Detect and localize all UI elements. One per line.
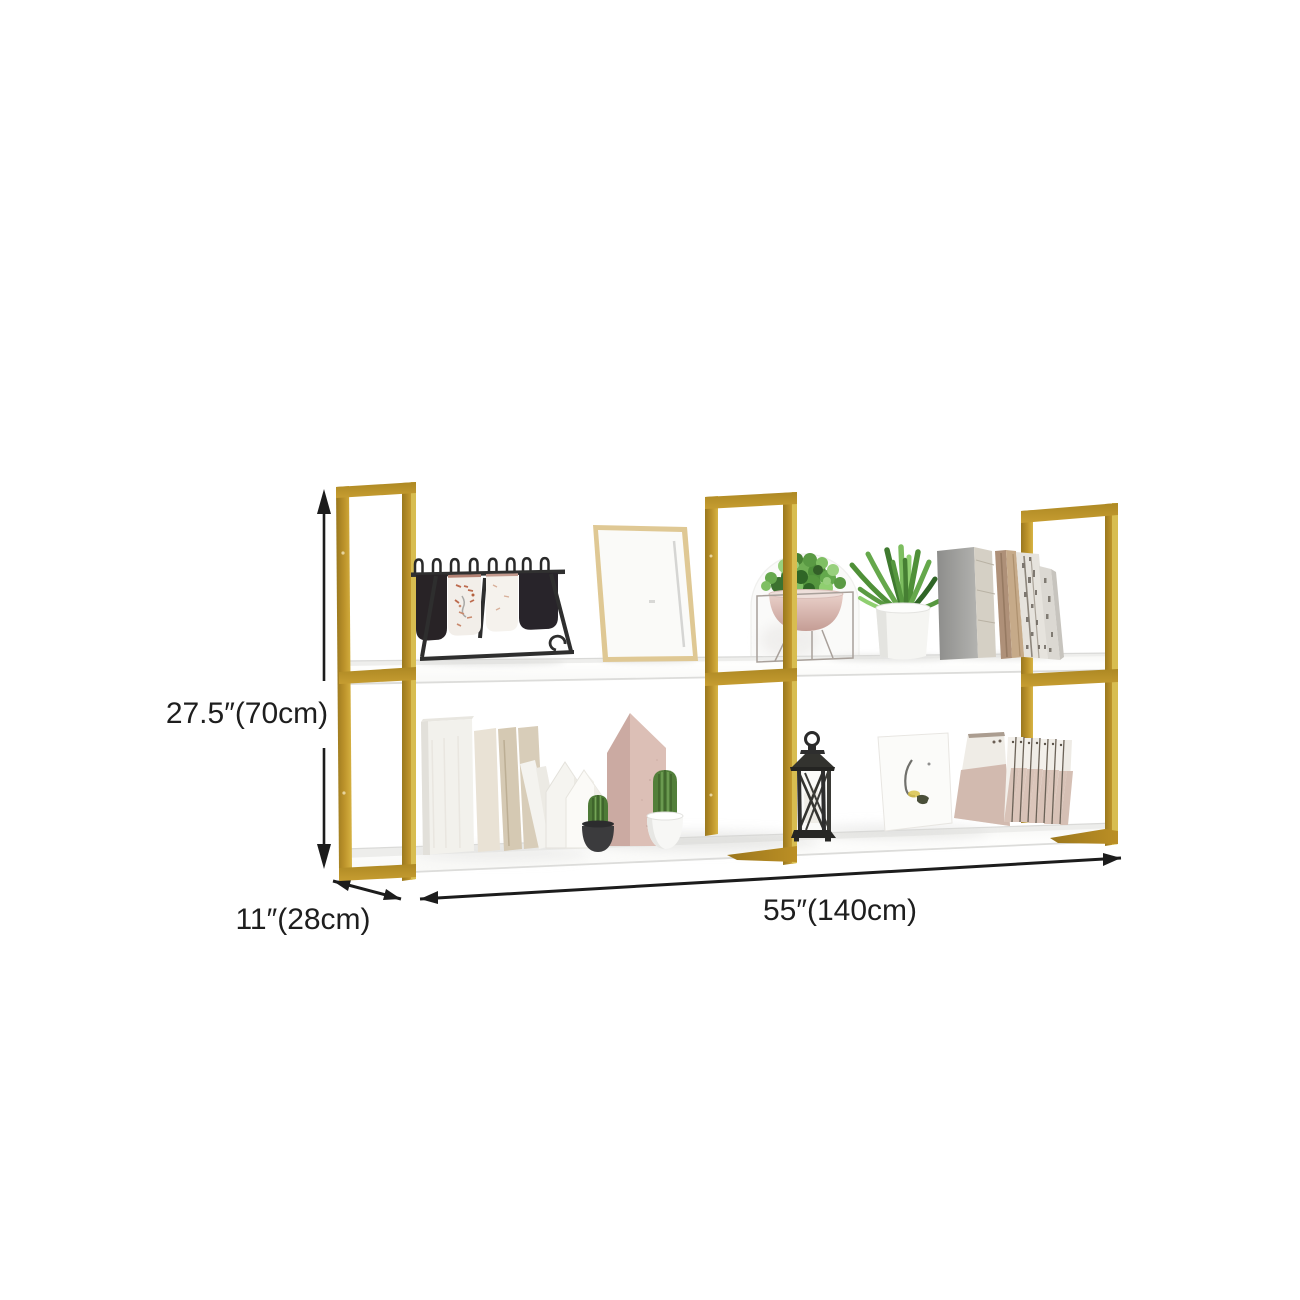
svg-text:27.5″(70cm): 27.5″(70cm) — [166, 697, 328, 730]
svg-text:55″(140cm): 55″(140cm) — [763, 894, 917, 927]
svg-text:11″(28cm): 11″(28cm) — [235, 903, 370, 936]
